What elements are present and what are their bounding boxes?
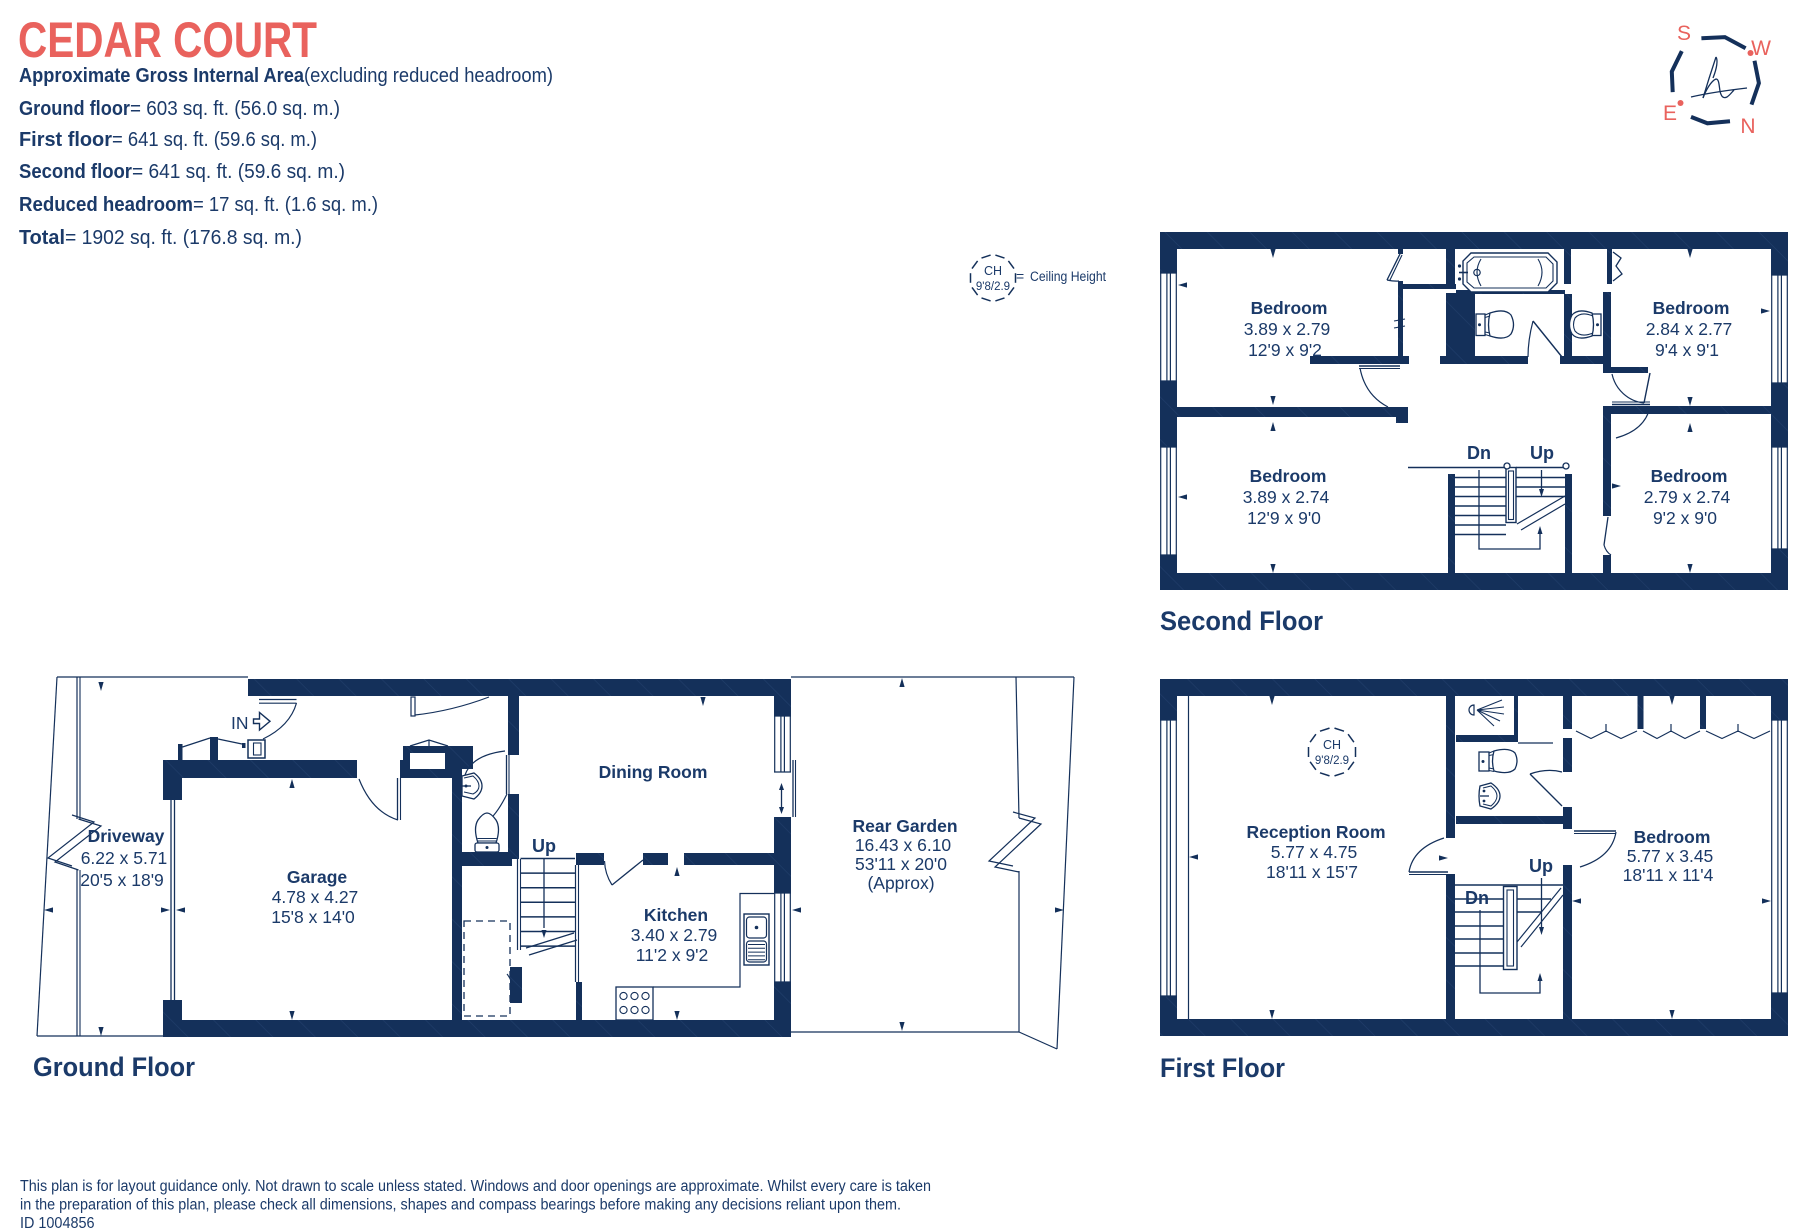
svg-text:53'11 x 20'0: 53'11 x 20'0 <box>855 854 947 874</box>
svg-text:= 641 sq. ft. (59.6 sq. m.): = 641 sq. ft. (59.6 sq. m.) <box>112 129 317 151</box>
svg-text:(Approx): (Approx) <box>867 873 934 893</box>
svg-text:This plan is for layout guidan: This plan is for layout guidance only. N… <box>20 1178 931 1195</box>
svg-text:9'4 x 9'1: 9'4 x 9'1 <box>1655 340 1719 360</box>
svg-text:Reduced headroom: Reduced headroom <box>19 194 193 216</box>
svg-text:IN: IN <box>231 713 249 733</box>
svg-text:Garage: Garage <box>287 867 348 887</box>
svg-text:6.22 x 5.71: 6.22 x 5.71 <box>81 848 168 868</box>
svg-text:Up: Up <box>1529 856 1553 876</box>
svg-text:Bedroom: Bedroom <box>1651 466 1728 486</box>
svg-text:20'5 x 18'9: 20'5 x 18'9 <box>80 870 164 890</box>
svg-text:W: W <box>1751 37 1771 60</box>
svg-text:CH: CH <box>984 264 1002 278</box>
svg-text:ID 1004856: ID 1004856 <box>20 1215 95 1232</box>
svg-text:E: E <box>1663 102 1677 125</box>
svg-text:Up: Up <box>532 836 556 856</box>
svg-text:Driveway: Driveway <box>88 826 165 846</box>
svg-text:= 603 sq. ft. (56.0 sq. m.): = 603 sq. ft. (56.0 sq. m.) <box>130 98 340 120</box>
svg-text:Up: Up <box>1530 443 1554 463</box>
svg-text:2.79 x 2.74: 2.79 x 2.74 <box>1644 487 1731 507</box>
svg-text:Ground floor: Ground floor <box>19 98 130 120</box>
svg-text:9'8/2.9: 9'8/2.9 <box>1315 755 1349 767</box>
svg-text:15'8 x 14'0: 15'8 x 14'0 <box>271 907 355 927</box>
svg-text:18'11 x 15'7: 18'11 x 15'7 <box>1266 862 1358 882</box>
svg-text:5.77 x 4.75: 5.77 x 4.75 <box>1271 842 1358 862</box>
svg-text:3.89 x 2.74: 3.89 x 2.74 <box>1243 487 1330 507</box>
svg-text:Ground Floor: Ground Floor <box>33 1052 195 1082</box>
svg-text:=: = <box>1016 268 1024 284</box>
svg-text:(excluding reduced headroom): (excluding reduced headroom) <box>304 65 553 87</box>
svg-text:Dn: Dn <box>1467 443 1491 463</box>
svg-text:CEDAR COURT: CEDAR COURT <box>18 12 317 68</box>
svg-text:Second Floor: Second Floor <box>1160 606 1323 636</box>
svg-text:18'11 x 11'4: 18'11 x 11'4 <box>1623 865 1714 885</box>
svg-text:4.78 x 4.27: 4.78 x 4.27 <box>272 887 359 907</box>
svg-text:11'2 x 9'2: 11'2 x 9'2 <box>636 945 709 965</box>
svg-text:9'2 x 9'0: 9'2 x 9'0 <box>1653 508 1717 528</box>
svg-text:First Floor: First Floor <box>1160 1053 1285 1083</box>
svg-text:Ceiling Height: Ceiling Height <box>1030 269 1106 284</box>
svg-text:in the preparation of this pla: in the preparation of this plan, please … <box>20 1197 901 1214</box>
svg-text:2.84 x 2.77: 2.84 x 2.77 <box>1646 319 1733 339</box>
svg-text:Bedroom: Bedroom <box>1634 827 1711 847</box>
svg-text:N: N <box>1740 115 1755 138</box>
svg-text:3.40 x 2.79: 3.40 x 2.79 <box>631 925 718 945</box>
svg-text:12'9 x 9'2: 12'9 x 9'2 <box>1248 340 1322 360</box>
svg-text:Kitchen: Kitchen <box>644 905 708 925</box>
svg-text:Dn: Dn <box>1465 888 1489 908</box>
svg-text:Bedroom: Bedroom <box>1251 298 1328 318</box>
svg-text:Bedroom: Bedroom <box>1250 466 1327 486</box>
svg-text:CH: CH <box>1323 738 1341 752</box>
svg-text:Bedroom: Bedroom <box>1653 298 1730 318</box>
svg-text:Approximate Gross Internal Are: Approximate Gross Internal Area <box>19 65 305 87</box>
svg-text:= 17 sq. ft. (1.6 sq. m.): = 17 sq. ft. (1.6 sq. m.) <box>193 194 378 216</box>
svg-text:First floor: First floor <box>19 129 112 151</box>
svg-text:12'9 x 9'0: 12'9 x 9'0 <box>1247 508 1321 528</box>
svg-text:Total: Total <box>19 227 65 249</box>
svg-text:9'8/2.9: 9'8/2.9 <box>976 281 1010 293</box>
svg-text:= 1902 sq. ft. (176.8 sq. m.): = 1902 sq. ft. (176.8 sq. m.) <box>65 227 302 249</box>
svg-text:Reception Room: Reception Room <box>1246 822 1385 842</box>
svg-text:Second floor: Second floor <box>19 161 132 183</box>
svg-text:Rear Garden: Rear Garden <box>852 816 957 836</box>
svg-text:S: S <box>1677 22 1691 45</box>
svg-text:3.89 x 2.79: 3.89 x 2.79 <box>1244 319 1331 339</box>
svg-text:= 641 sq. ft. (59.6 sq. m.): = 641 sq. ft. (59.6 sq. m.) <box>132 161 345 183</box>
svg-text:16.43 x 6.10: 16.43 x 6.10 <box>855 835 952 855</box>
svg-text:Dining Room: Dining Room <box>599 762 708 782</box>
svg-text:5.77 x 3.45: 5.77 x 3.45 <box>1627 846 1714 866</box>
